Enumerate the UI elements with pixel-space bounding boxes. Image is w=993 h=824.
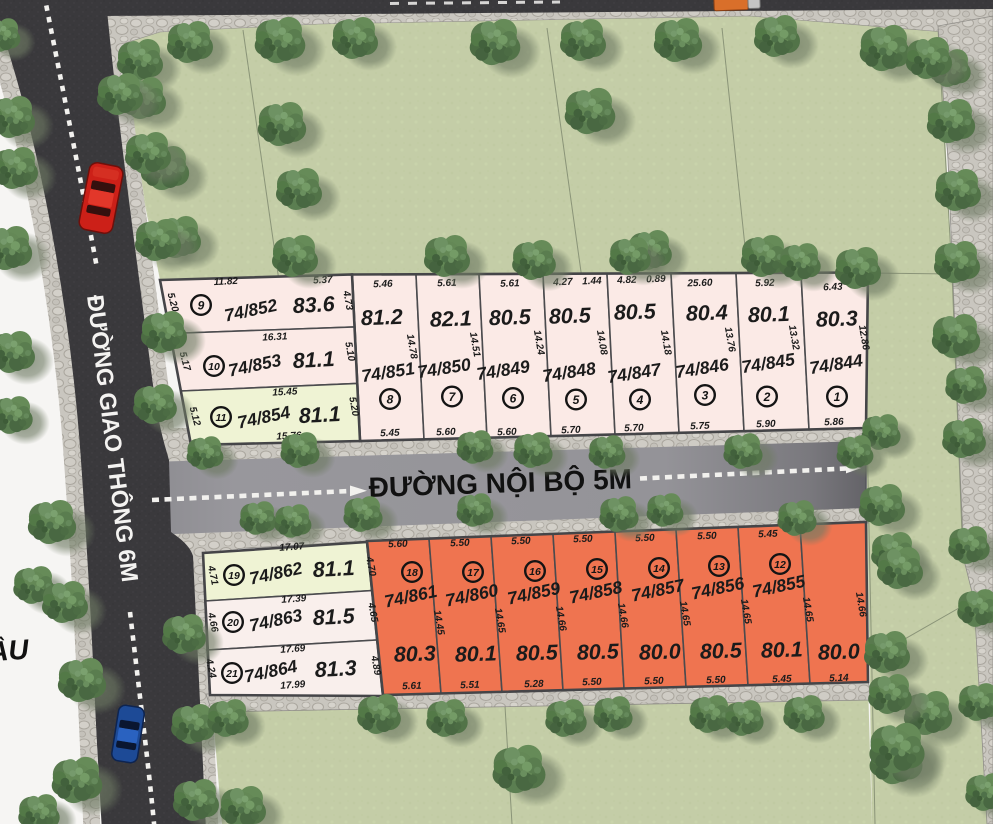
svg-text:5.50: 5.50 [450,538,470,550]
svg-text:80.4: 80.4 [685,300,728,325]
svg-text:1.44: 1.44 [582,276,602,288]
svg-text:80.1: 80.1 [454,641,497,666]
svg-text:11.82: 11.82 [213,276,238,288]
svg-text:17: 17 [467,567,480,579]
svg-text:5.45: 5.45 [758,529,778,541]
svg-text:81.1: 81.1 [292,347,335,373]
svg-text:5.90: 5.90 [756,419,776,431]
svg-text:11: 11 [216,412,227,424]
svg-text:5.28: 5.28 [524,679,544,691]
svg-text:5.61: 5.61 [402,681,422,693]
svg-text:5.45: 5.45 [380,428,400,440]
svg-text:5.60: 5.60 [436,427,456,439]
svg-text:13: 13 [713,561,725,573]
svg-text:80.3: 80.3 [815,306,858,331]
svg-text:5.51: 5.51 [460,680,480,692]
svg-text:5.50: 5.50 [697,531,717,543]
svg-text:81.5: 81.5 [312,604,356,630]
svg-text:5.50: 5.50 [573,534,593,546]
svg-text:6: 6 [510,391,517,405]
svg-text:83.6: 83.6 [292,292,336,318]
svg-text:15: 15 [591,564,603,576]
svg-text:80.1: 80.1 [760,637,803,662]
svg-text:17.99: 17.99 [280,679,306,692]
svg-text:16.31: 16.31 [262,331,288,343]
svg-text:5.14: 5.14 [829,673,849,685]
svg-text:10: 10 [208,361,220,373]
svg-text:80.0: 80.0 [817,639,860,664]
svg-text:82.1: 82.1 [429,306,472,331]
svg-text:5.50: 5.50 [582,677,602,689]
svg-text:5: 5 [573,393,580,407]
svg-text:80.5: 80.5 [548,303,592,328]
svg-text:9: 9 [198,298,205,312]
svg-text:3: 3 [702,388,709,402]
svg-text:80.5: 80.5 [488,305,532,330]
svg-text:80.5: 80.5 [699,638,743,663]
svg-text:1: 1 [834,390,841,404]
svg-text:12: 12 [774,559,786,571]
svg-text:80.5: 80.5 [515,640,559,665]
svg-text:5.61: 5.61 [500,278,520,290]
svg-text:5.60: 5.60 [388,539,408,551]
svg-text:8: 8 [387,392,394,406]
svg-text:80.0: 80.0 [638,639,681,664]
svg-text:81.3: 81.3 [314,656,357,682]
svg-text:5.50: 5.50 [511,536,531,548]
svg-text:80.5: 80.5 [613,299,657,324]
svg-text:5.70: 5.70 [624,423,644,435]
svg-text:2: 2 [763,390,771,404]
svg-text:81.2: 81.2 [360,305,403,330]
svg-text:80.1: 80.1 [747,302,790,327]
svg-text:5.46: 5.46 [373,279,393,291]
svg-text:4: 4 [636,393,644,407]
svg-text:5.70: 5.70 [561,425,581,437]
svg-text:81.1: 81.1 [298,402,341,428]
svg-text:ẦU: ẦU [0,634,30,668]
svg-text:5.50: 5.50 [706,675,726,687]
svg-text:17.69: 17.69 [280,643,306,656]
svg-text:15.45: 15.45 [272,386,298,398]
svg-text:16: 16 [529,566,541,578]
svg-text:80.5: 80.5 [576,639,620,664]
svg-text:5.86: 5.86 [824,417,844,429]
svg-text:5.45: 5.45 [772,674,792,686]
svg-text:5.75: 5.75 [690,421,710,433]
svg-text:21: 21 [225,668,238,680]
svg-text:5.60: 5.60 [497,427,517,439]
svg-text:25.60: 25.60 [686,278,713,290]
svg-text:20: 20 [226,617,239,629]
svg-text:5.50: 5.50 [644,676,664,688]
svg-text:17.39: 17.39 [281,593,307,606]
svg-text:18: 18 [406,567,418,579]
svg-text:19: 19 [228,570,240,582]
svg-text:80.3: 80.3 [393,641,436,666]
svg-text:81.1: 81.1 [312,556,355,582]
svg-text:14: 14 [653,563,665,575]
